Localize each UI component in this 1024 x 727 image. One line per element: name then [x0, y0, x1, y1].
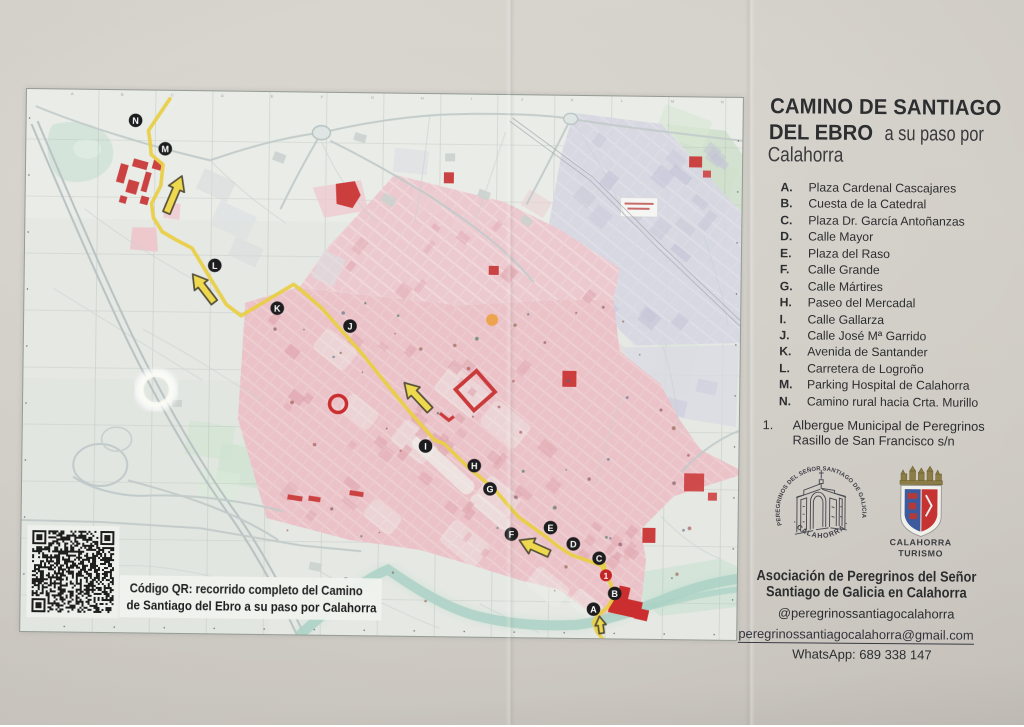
svg-text:D: D: [221, 93, 224, 98]
svg-text:K: K: [274, 303, 281, 313]
svg-text:B: B: [121, 92, 124, 97]
svg-text:N: N: [132, 116, 139, 126]
svg-text:A: A: [71, 91, 74, 96]
svg-text:J: J: [347, 321, 352, 331]
svg-text:I: I: [471, 96, 472, 101]
svg-text:A: A: [590, 604, 597, 614]
svg-text:1: 1: [603, 571, 608, 581]
svg-text:C: C: [596, 553, 603, 563]
svg-text:I: I: [424, 441, 427, 451]
svg-text:B: B: [611, 589, 618, 599]
svg-text:M: M: [161, 144, 169, 154]
svg-text:H: H: [471, 461, 478, 471]
svg-text:H: H: [421, 95, 424, 100]
svg-text:G: G: [371, 95, 374, 100]
svg-text:E: E: [271, 94, 274, 99]
svg-text:C: C: [171, 92, 174, 97]
svg-text:N: N: [721, 99, 724, 104]
svg-text:E: E: [547, 523, 553, 533]
svg-text:G: G: [486, 484, 493, 494]
svg-text:L: L: [212, 261, 218, 271]
svg-text:K: K: [571, 97, 574, 102]
svg-text:D: D: [570, 539, 577, 549]
svg-text:Código QR: recorrido completo: Código QR: recorrido completo del Camino: [130, 581, 363, 598]
svg-text:M: M: [671, 99, 674, 104]
svg-text:J: J: [521, 97, 523, 102]
